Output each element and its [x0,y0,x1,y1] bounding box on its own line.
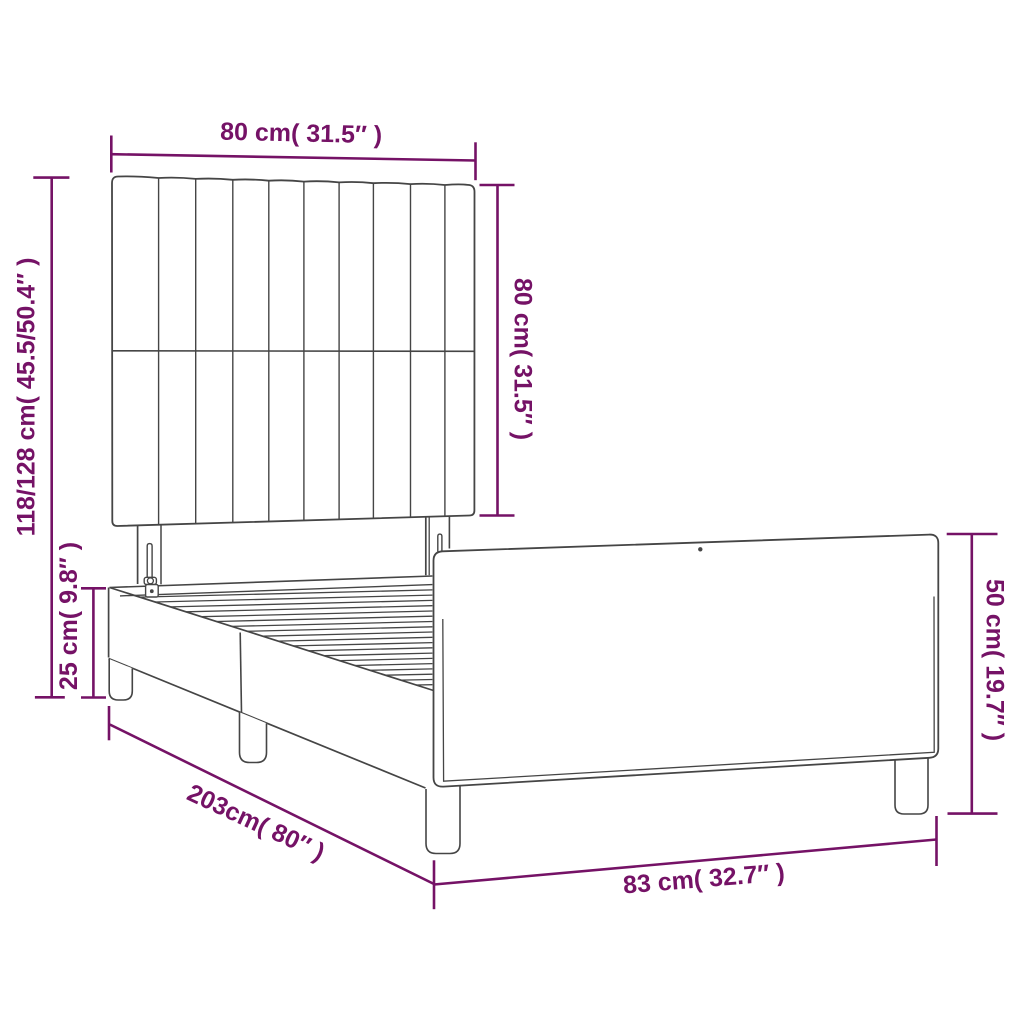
svg-text:50 cm( 19.7″ ): 50 cm( 19.7″ ) [981,579,1009,741]
svg-text:80 cm( 31.5″ ): 80 cm( 31.5″ ) [509,278,537,440]
svg-text:118/128 cm( 45.5/50.4″ ): 118/128 cm( 45.5/50.4″ ) [13,258,41,537]
svg-text:25 cm( 9.8″ ): 25 cm( 9.8″ ) [55,542,83,690]
svg-text:80 cm( 31.5″ ): 80 cm( 31.5″ ) [220,118,383,150]
